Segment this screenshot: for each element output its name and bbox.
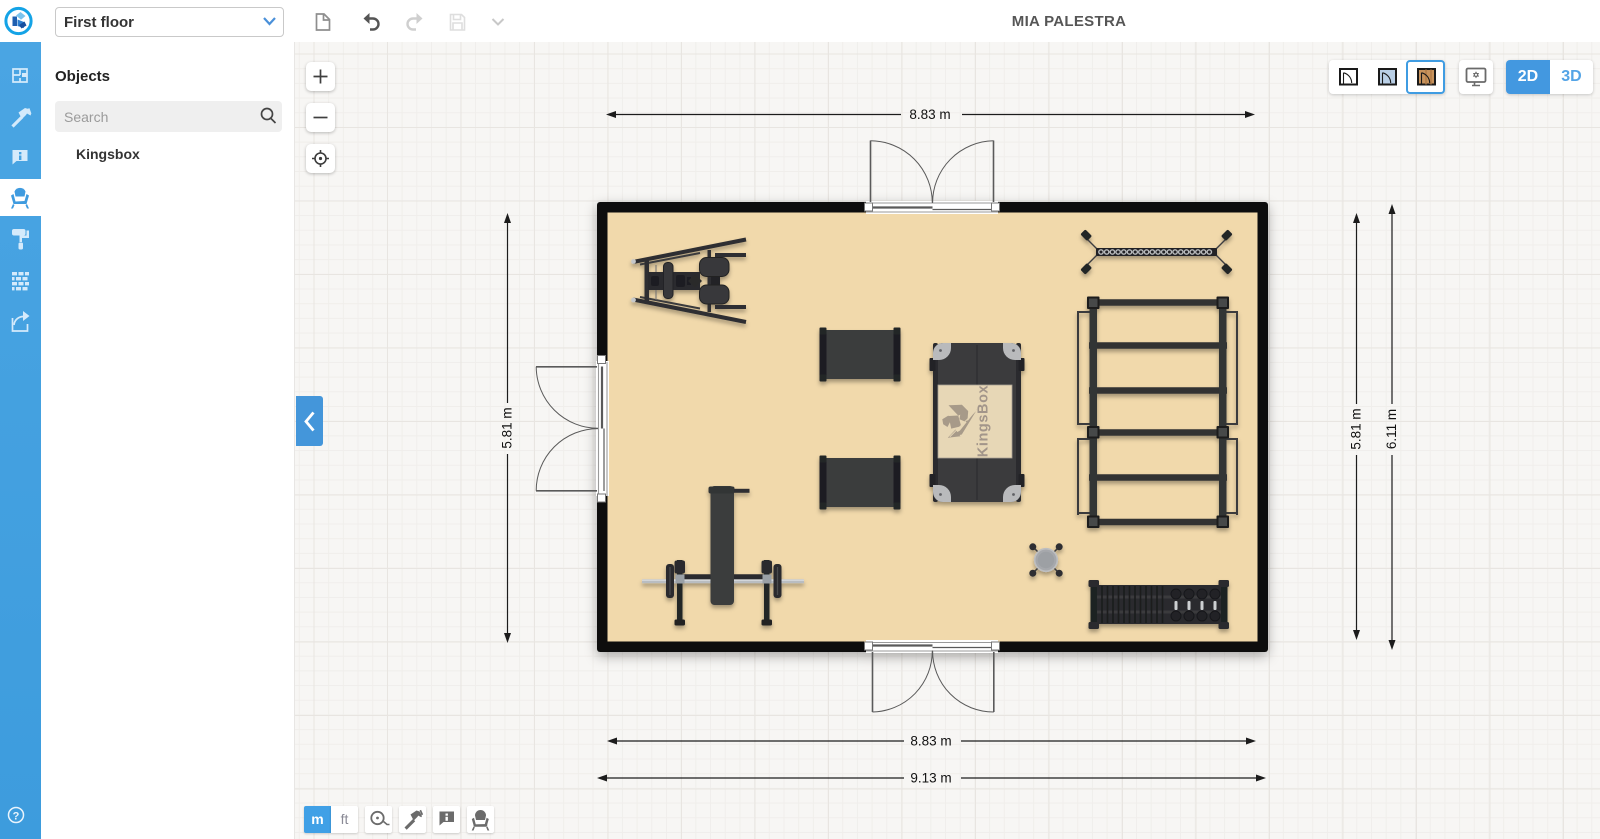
svg-text:?: ? (13, 811, 20, 823)
